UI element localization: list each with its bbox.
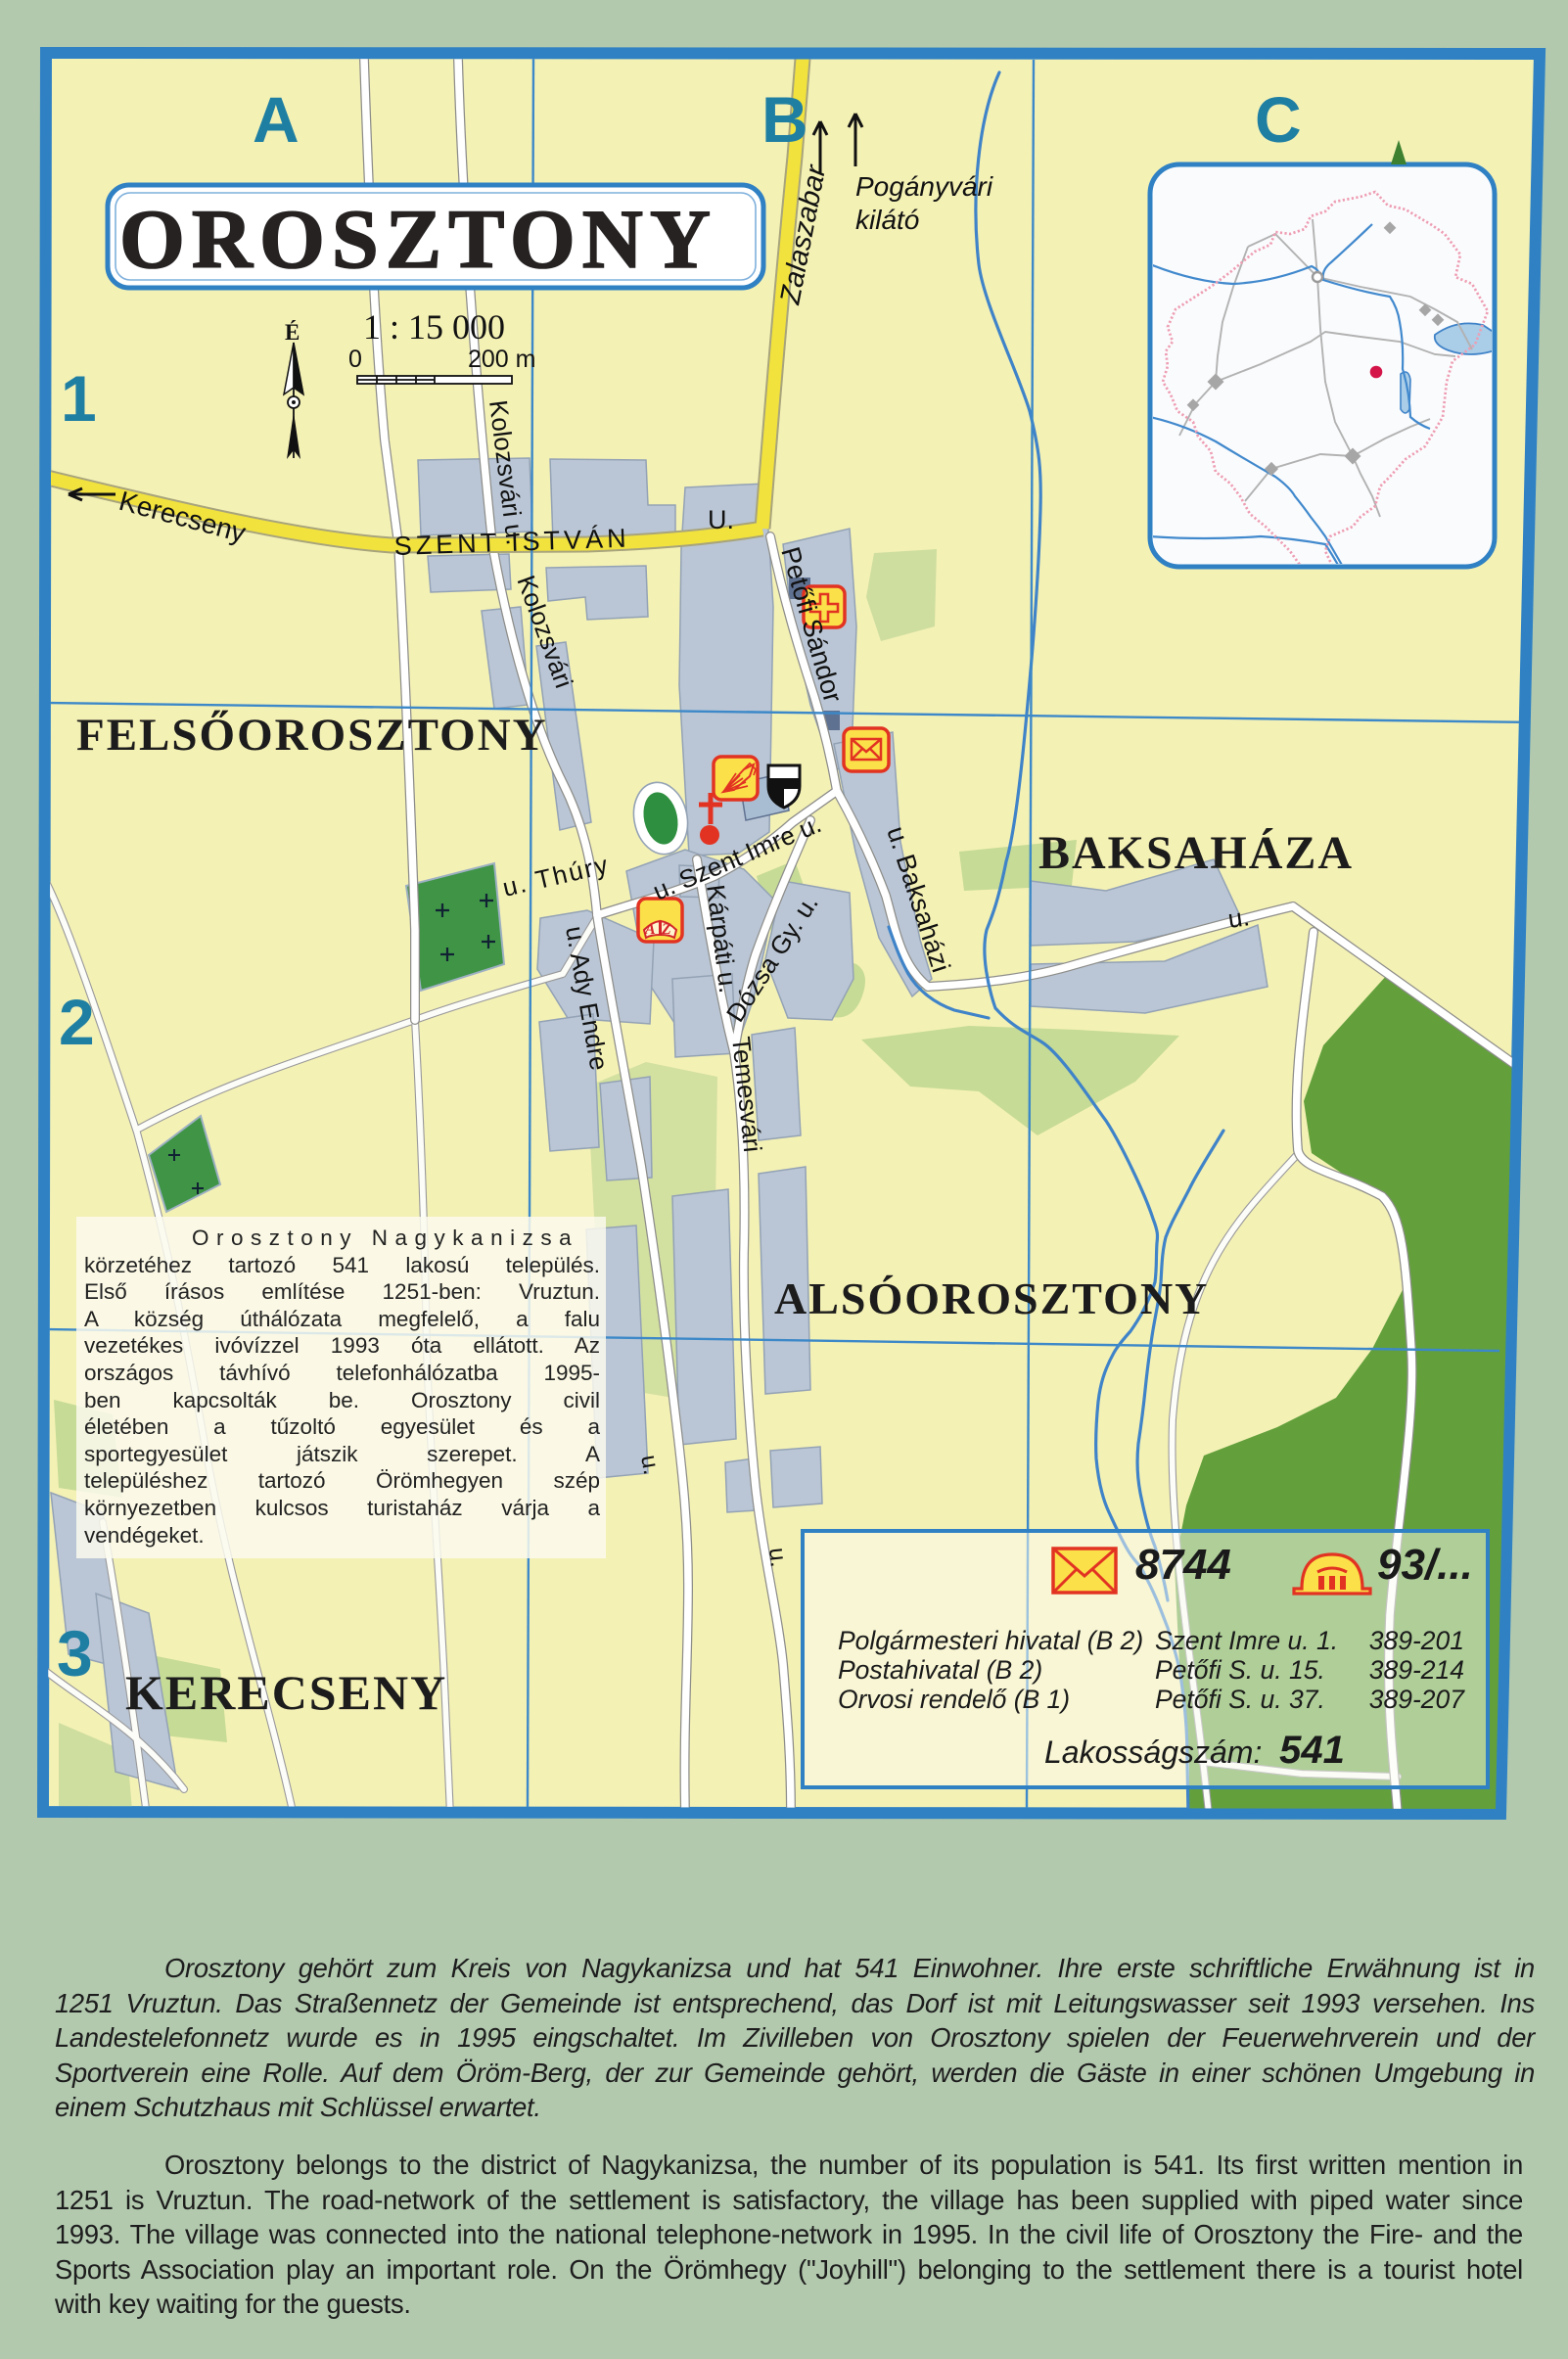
svg-text:C: C — [1255, 83, 1302, 156]
svg-text:A: A — [644, 921, 656, 938]
svg-text:KERECSENY: KERECSENY — [125, 1665, 447, 1720]
svg-text:É: É — [285, 320, 300, 345]
svg-text:Z: Z — [661, 921, 671, 938]
svg-text:2: 2 — [59, 986, 95, 1058]
svg-text:kilátó: kilátó — [855, 205, 919, 235]
svg-text:1: 1 — [61, 362, 97, 435]
svg-text:3: 3 — [57, 1617, 93, 1689]
svg-text:200 m: 200 m — [468, 346, 535, 373]
svg-text:0: 0 — [348, 346, 362, 373]
svg-text:OROSZTONY: OROSZTONY — [119, 192, 717, 286]
svg-text:FELSŐOROSZTONY: FELSŐOROSZTONY — [76, 710, 548, 761]
svg-text:u.: u. — [763, 1547, 792, 1569]
svg-text:A: A — [253, 83, 300, 156]
svg-text:Pogányvári: Pogányvári — [855, 171, 993, 202]
svg-text:B: B — [761, 83, 808, 156]
svg-text:BAKSAHÁZA: BAKSAHÁZA — [1038, 827, 1354, 879]
svg-text:U.: U. — [708, 505, 734, 534]
svg-text:u.: u. — [1226, 902, 1252, 934]
svg-text:1 : 15 000: 1 : 15 000 — [363, 307, 505, 347]
svg-text:ALSÓOROSZTONY: ALSÓOROSZTONY — [774, 1273, 1209, 1323]
